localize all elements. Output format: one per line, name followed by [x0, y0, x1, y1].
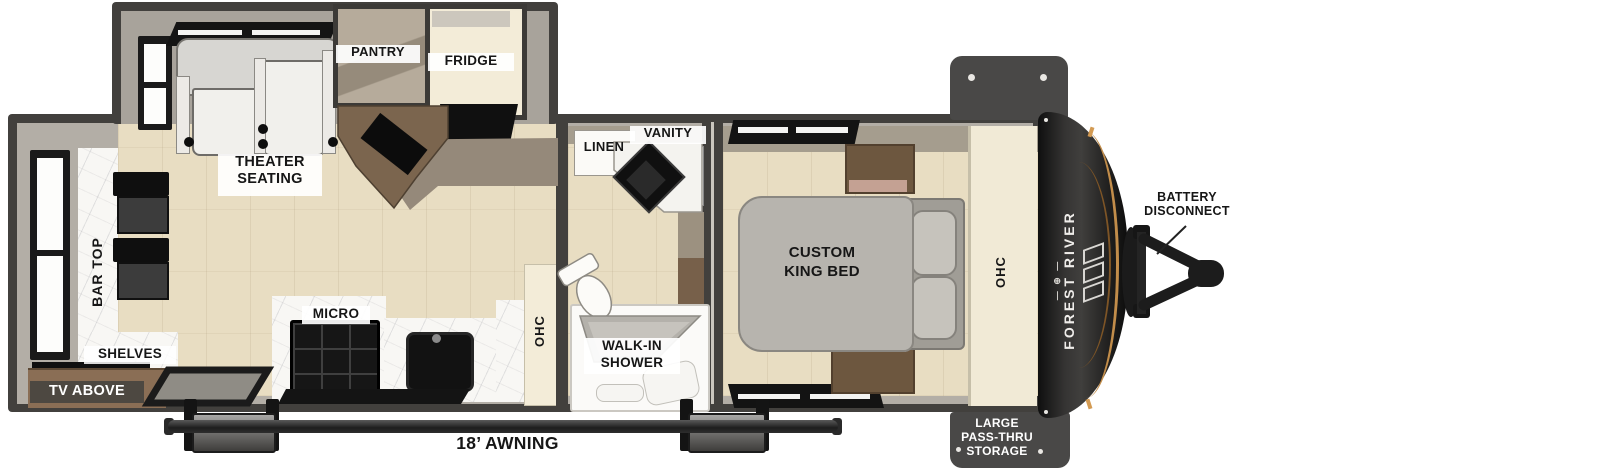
micro-label: MICRO — [302, 306, 370, 324]
awning-label: 18’ AWNING — [435, 433, 580, 457]
bar-top-label: BAR TOP — [89, 207, 107, 337]
shower-seat — [596, 384, 644, 402]
shape-overlay — [0, 0, 1600, 469]
tv-above-label: TV ABOVE — [30, 381, 144, 403]
pass-thru-storage-label: LARGE PASS-THRU STORAGE — [950, 416, 1044, 466]
entry-step-tread — [192, 413, 276, 453]
bedroom-ohc-label: OHC — [994, 240, 1010, 304]
floorplan: PANTRY FRIDGE THEATER SEATING BAR TOP SH… — [0, 0, 1600, 469]
brand-emblem: — ⊕ — — [1052, 220, 1064, 340]
entry-door-mat — [148, 370, 268, 403]
shelves-label: SHELVES — [84, 346, 176, 364]
linen-label: LINEN — [576, 140, 632, 157]
entry-step-tread — [688, 413, 766, 453]
custom-king-bed-label: CUSTOM KING BED — [750, 244, 894, 288]
kitchen-ohc-label: OHC — [533, 299, 549, 363]
walk-in-shower-label: WALK-IN SHOWER — [584, 338, 680, 374]
theater-seating-label: THEATER SEATING — [218, 154, 322, 196]
pantry-label: PANTRY — [336, 45, 420, 63]
kitchen-kick-panel — [278, 389, 470, 404]
vanity-label: VANITY — [630, 126, 706, 144]
fridge-label: FRIDGE — [428, 53, 514, 71]
battery-disconnect-label: BATTERY DISCONNECT — [1126, 190, 1248, 220]
entertainment-center — [338, 106, 448, 208]
awning-rail — [168, 420, 838, 433]
